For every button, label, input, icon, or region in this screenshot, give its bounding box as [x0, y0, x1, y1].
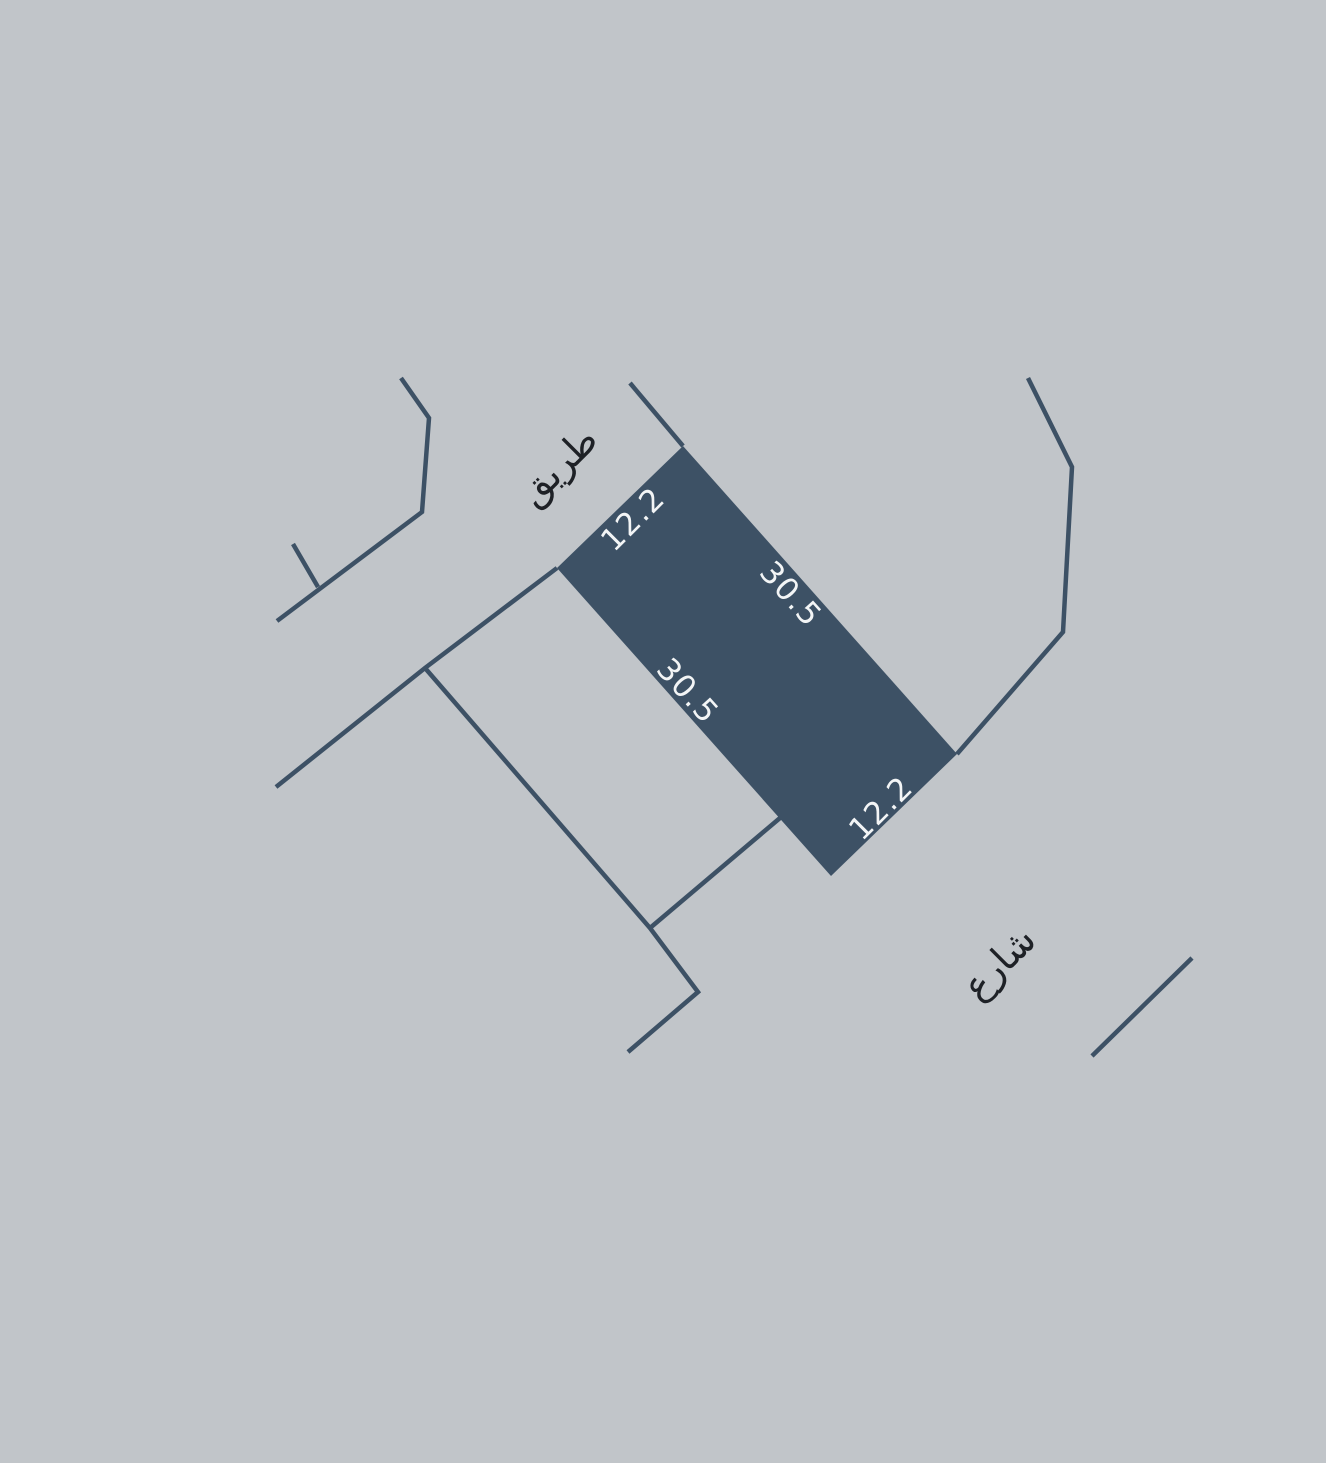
parcel-map-canvas: 12.2 30.5 30.5 12.2 طريق شارع [0, 0, 1326, 1463]
parcel-map: 12.2 30.5 30.5 12.2 طريق شارع [0, 0, 1326, 1463]
map-background [0, 0, 1326, 1463]
